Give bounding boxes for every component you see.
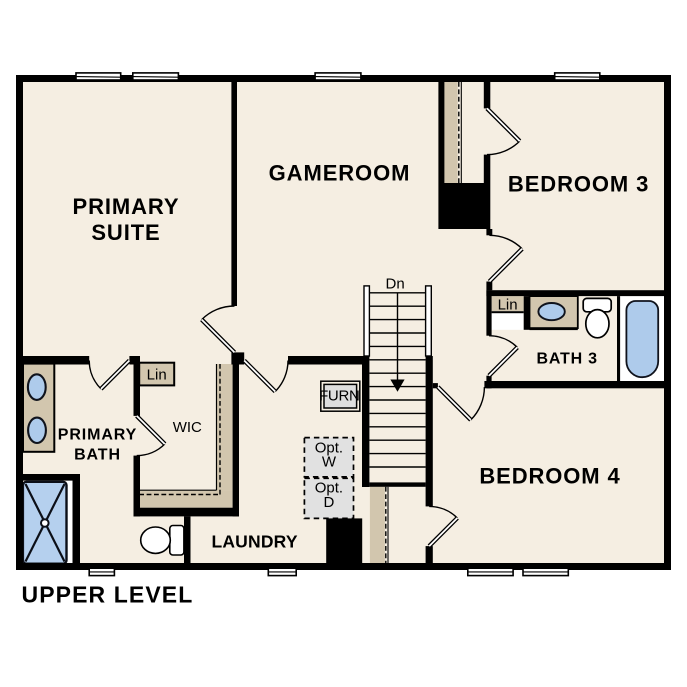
svg-text:GAMEROOM: GAMEROOM (269, 161, 411, 186)
svg-text:WIC: WIC (173, 419, 202, 436)
svg-text:BATH: BATH (74, 447, 121, 464)
svg-text:BEDROOM 3: BEDROOM 3 (508, 172, 649, 197)
svg-text:SUITE: SUITE (91, 220, 160, 245)
svg-text:W: W (322, 454, 337, 471)
svg-text:LAUNDRY: LAUNDRY (211, 532, 297, 552)
svg-text:D: D (323, 494, 334, 511)
svg-text:PRIMARY: PRIMARY (73, 194, 180, 219)
svg-text:UPPER LEVEL: UPPER LEVEL (22, 582, 194, 608)
svg-text:Lin: Lin (147, 367, 167, 384)
svg-text:PRIMARY: PRIMARY (58, 427, 138, 444)
svg-text:BEDROOM 4: BEDROOM 4 (479, 464, 620, 489)
svg-text:FURN: FURN (319, 388, 359, 405)
svg-text:BATH 3: BATH 3 (536, 351, 597, 368)
svg-text:Dn: Dn (386, 276, 405, 293)
svg-text:Lin: Lin (498, 296, 518, 313)
